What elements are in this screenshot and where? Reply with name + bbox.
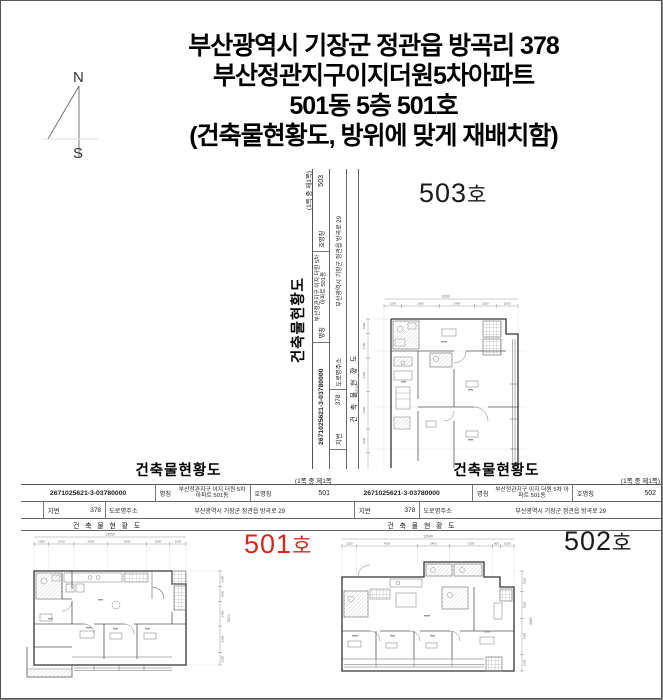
form-title-503: 건축물현황도 — [287, 169, 308, 471]
jibun-value: 378 — [335, 394, 342, 405]
svg-text:1600: 1600 — [362, 437, 366, 444]
svg-text:9200: 9200 — [442, 295, 450, 299]
main-title: 부산광역시 기장군 정관읍 방곡리 378 부산정관지구이지더원5차아파트 50… — [96, 31, 651, 151]
title-line-note: (건축물현황도, 방위에 맞게 재배치함) — [96, 121, 651, 151]
unit-number-501: 501 — [275, 485, 336, 501]
svg-text:1000: 1000 — [362, 322, 366, 329]
unit-label: 호명칭 — [250, 485, 275, 501]
svg-text:600: 600 — [494, 542, 499, 546]
title-line-address: 부산광역시 기장군 정관읍 방곡리 378 — [96, 31, 651, 61]
form-title-501: 건축물현황도 — [21, 459, 336, 480]
svg-text:9490: 9490 — [529, 617, 533, 625]
svg-text:13050: 13050 — [105, 533, 115, 537]
name-label: 명칭 — [313, 324, 329, 343]
jibun-label: 지번 — [333, 433, 343, 445]
floor-plan-501: 13050 1000 1700 2300 2600 1600 1100 1500… — [24, 529, 236, 697]
compass-needle-diagonal — [48, 86, 79, 139]
svg-text:9200: 9200 — [227, 614, 231, 622]
svg-text:1200: 1200 — [389, 302, 396, 306]
document-canvas: N S 부산광역시 기장군 정관읍 방곡리 378 부산정관지구이지더원5차아파… — [0, 0, 662, 699]
svg-text:3200: 3200 — [468, 542, 475, 546]
svg-text:3450: 3450 — [523, 632, 527, 639]
svg-text:2400: 2400 — [221, 610, 225, 617]
unit-number-502: 502 — [598, 485, 662, 501]
svg-text:1500: 1500 — [221, 575, 225, 582]
name-label: 명칭 — [155, 485, 174, 501]
svg-text:2400: 2400 — [454, 302, 461, 306]
svg-text:1100: 1100 — [175, 540, 182, 544]
jibun-value: 378 — [90, 507, 101, 514]
unit-502-suffix: 호 — [612, 532, 631, 555]
svg-text:1700: 1700 — [362, 342, 366, 349]
form-title-502: 건축물현황도 — [331, 459, 662, 480]
svg-text:1500: 1500 — [221, 590, 225, 597]
svg-text:2400: 2400 — [430, 542, 437, 546]
doc-number-502: 2671025621-3-03780000 — [331, 485, 472, 501]
header-table-501: 2671025621-3-03780000 명칭 부산정관지구 이지 더원 5차… — [21, 484, 336, 519]
unit-502-number: 502 — [564, 526, 612, 556]
svg-text:1200: 1200 — [221, 655, 225, 662]
title-line-unit: 501동 5층 501호 — [96, 91, 651, 121]
unit-label-501: 501호 — [244, 529, 311, 560]
jibun-cell: 지번 378 — [354, 502, 419, 518]
name-label: 명칭 — [472, 485, 492, 501]
svg-text:1000: 1000 — [504, 542, 511, 546]
svg-text:1540: 1540 — [523, 659, 527, 666]
jibun-label: 지번 — [359, 505, 371, 515]
svg-text:1500: 1500 — [482, 302, 489, 306]
jibun-label: 지번 — [48, 505, 60, 515]
compass-north-label: N — [73, 69, 84, 86]
svg-text:4500: 4500 — [384, 542, 391, 546]
svg-text:1600: 1600 — [155, 540, 162, 544]
svg-text:2300: 2300 — [87, 540, 94, 544]
jibun-value: 378 — [405, 507, 416, 514]
unit-number-503: 503 — [313, 169, 329, 228]
title-line-apartment: 부산정관지구이지더원5차아파트 — [96, 61, 651, 91]
road-label: 도로명주소 — [419, 502, 459, 518]
unit-label: 호명칭 — [572, 485, 599, 501]
name-value: 부산정관지구 이지 더원 5차 아파트 501동 — [313, 252, 329, 324]
road-value: 부산광역시 기장군 정관읍 방곡로 29 — [459, 502, 662, 518]
doc-number-503: 2671025621-3-03780000 — [313, 343, 329, 471]
svg-text:2600: 2600 — [221, 635, 225, 642]
unit-label: 호명칭 — [313, 228, 329, 252]
svg-text:12900: 12900 — [423, 535, 433, 539]
svg-text:2600: 2600 — [417, 302, 424, 306]
header-table-502: 2671025621-3-03780000 명칭 부산정관지구 이지 더원 5차… — [331, 484, 662, 519]
svg-text:1500: 1500 — [504, 302, 511, 306]
unit-503-suffix: 호 — [467, 184, 486, 207]
svg-text:2600: 2600 — [124, 540, 131, 544]
svg-text:2600: 2600 — [362, 406, 366, 413]
unit-503-number: 503 — [419, 178, 467, 208]
name-value: 부산정관지구 이지 더원 5차 아파트 501동 — [175, 485, 250, 501]
road-label: 도로명주소 — [105, 502, 143, 518]
svg-text:13050: 13050 — [355, 384, 359, 394]
sub-title-502: 건 축 물 현 황 도 — [377, 520, 466, 530]
page-503-rotated: 건축물현황도 (1쪽 중 제1쪽) 2671025621-3-03780000 … — [284, 169, 349, 471]
doc-number-501: 2671025621-3-03780000 — [21, 485, 155, 501]
svg-text:2300: 2300 — [362, 371, 366, 378]
svg-text:2550: 2550 — [523, 601, 527, 608]
road-value: 부산광역시 기장군 정관읍 방곡로 29 — [143, 502, 336, 518]
name-value: 부산정관지구 이지 더원 5차 아파트 501동 — [493, 485, 572, 501]
unit-501-number: 501 — [244, 529, 292, 559]
floor-plan-503: 9200 1200 2600 2400 1500 1500 1000 1700 … — [346, 289, 561, 468]
svg-text:1950: 1950 — [523, 577, 527, 584]
road-value: 부산광역시 기장군 정관읍 방곡로 29 — [330, 169, 346, 354]
svg-text:1100: 1100 — [346, 542, 353, 546]
unit-label-503: 503호 — [419, 178, 486, 209]
compass-south-label: S — [73, 145, 83, 159]
svg-text:1700: 1700 — [58, 540, 65, 544]
jibun-cell: 지번 378 — [330, 390, 346, 450]
jibun-cell: 지번 378 — [43, 502, 105, 518]
unit-501-suffix: 호 — [292, 535, 311, 558]
unit-label-502: 502호 — [564, 526, 631, 557]
header-table-503: 2671025621-3-03780000 명칭 부산정관지구 이지 더원 5차… — [312, 169, 347, 471]
floor-plan-502: 12900 1100 4500 2400 3200 600 1000 1950 … — [334, 531, 546, 697]
svg-text:1000: 1000 — [38, 540, 45, 544]
road-label: 도로명주소 — [330, 354, 346, 391]
